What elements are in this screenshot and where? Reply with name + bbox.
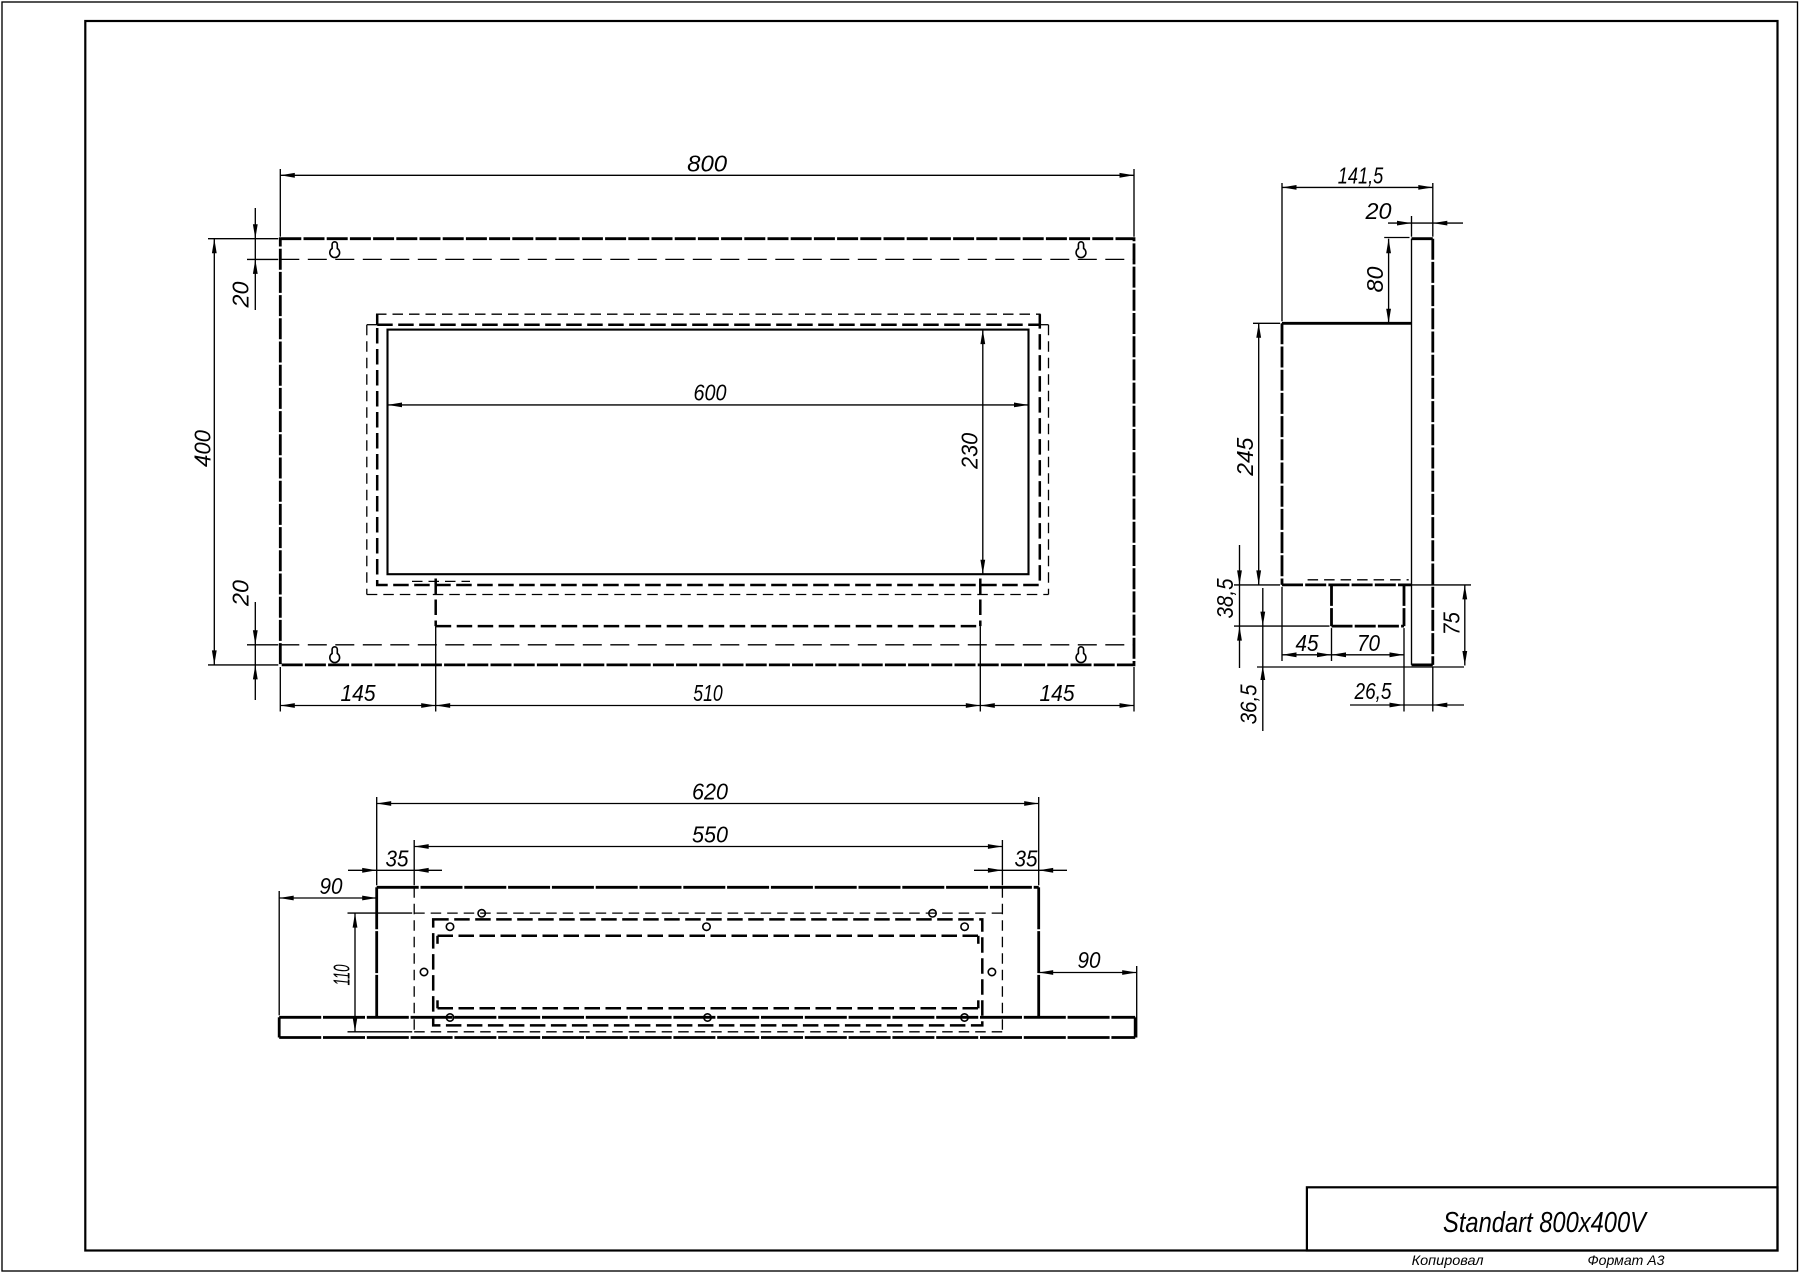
svg-text:20: 20 xyxy=(227,580,253,607)
svg-text:20: 20 xyxy=(227,281,253,308)
svg-text:510: 510 xyxy=(693,680,723,706)
svg-text:45: 45 xyxy=(1296,630,1319,656)
svg-text:75: 75 xyxy=(1438,612,1464,635)
svg-text:20: 20 xyxy=(1364,198,1391,224)
svg-text:80: 80 xyxy=(1362,266,1388,292)
svg-text:800: 800 xyxy=(687,150,727,176)
svg-text:Копировал: Копировал xyxy=(1412,1252,1484,1268)
svg-text:70: 70 xyxy=(1357,630,1380,656)
svg-text:Standart 800x400V: Standart 800x400V xyxy=(1443,1207,1648,1239)
svg-text:400: 400 xyxy=(190,430,216,467)
svg-text:230: 230 xyxy=(956,433,982,470)
svg-text:145: 145 xyxy=(1040,680,1075,706)
svg-text:Формат А3: Формат А3 xyxy=(1588,1252,1665,1268)
svg-text:90: 90 xyxy=(1078,947,1101,973)
svg-text:90: 90 xyxy=(320,873,343,899)
svg-text:26,5: 26,5 xyxy=(1354,678,1392,704)
svg-text:145: 145 xyxy=(341,680,376,706)
svg-text:550: 550 xyxy=(692,822,728,848)
svg-text:110: 110 xyxy=(329,964,355,985)
svg-text:35: 35 xyxy=(386,845,409,871)
svg-text:38,5: 38,5 xyxy=(1212,578,1238,618)
svg-text:141,5: 141,5 xyxy=(1338,162,1384,188)
svg-text:35: 35 xyxy=(1015,845,1038,871)
svg-text:600: 600 xyxy=(694,380,727,406)
svg-text:245: 245 xyxy=(1232,437,1258,476)
svg-text:620: 620 xyxy=(692,779,728,805)
svg-text:36,5: 36,5 xyxy=(1235,684,1261,724)
